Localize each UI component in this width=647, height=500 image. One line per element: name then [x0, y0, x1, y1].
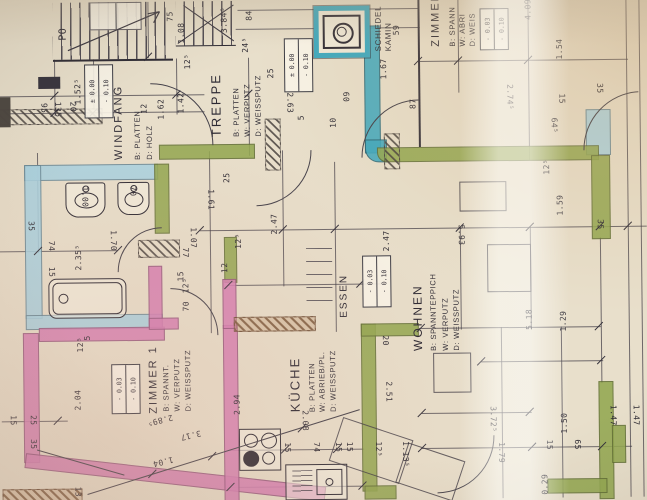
dim-label: 15: [47, 267, 56, 278]
level-table-windfang: ± 0.00 - 0.10: [84, 64, 114, 118]
finish-label: B: PLATTEN: [307, 363, 317, 412]
dim-label: 12⁵: [183, 54, 192, 70]
dim-label: 2.35⁵: [74, 244, 83, 270]
finish-label: B: SPANN: [447, 7, 456, 47]
finish-label: W: ABRI: [458, 13, 467, 46]
dim-label: 84: [244, 10, 253, 21]
dim-label: 135: [53, 102, 62, 118]
dim-label: 1.08: [177, 23, 186, 44]
level-value: - 0.03: [483, 17, 491, 41]
finish-label: D: WEIS: [468, 13, 477, 47]
level-value: - 0.10: [102, 79, 110, 103]
dim-label: 15: [176, 271, 185, 282]
room-label-essen: ESSEN: [338, 274, 349, 318]
dim-label: 2.51: [384, 381, 393, 402]
fixture-label: 70: [128, 186, 137, 197]
level-value: ± 0.00: [88, 80, 96, 104]
dim-label: 1.70: [109, 230, 118, 251]
dim-label: 2.08: [301, 410, 310, 431]
room-label-windfang: WINDFANG: [112, 85, 125, 160]
room-label-kamin: SCHIEDEL: [373, 6, 382, 52]
dim-label: 1.47: [632, 405, 641, 426]
dim-label: 5: [297, 115, 306, 120]
dim-label: 13: [73, 487, 82, 498]
level-table-treppe: ± 0.00 - 0.10: [284, 38, 314, 92]
level-value: ± 0.00: [287, 54, 295, 78]
dim-label: 65: [573, 439, 582, 450]
level-table-zimmer1: - 0.03 - 0.10: [111, 364, 141, 414]
dim-label: 1.54: [555, 39, 564, 60]
dim-label: 35: [596, 219, 605, 230]
dim-label: 20: [381, 335, 390, 346]
dim-label: 2.47: [382, 230, 391, 251]
finish-label: B: SPANNT.: [161, 364, 170, 411]
dim-label: 5: [83, 335, 92, 340]
dim-label: 1.13⁵: [401, 441, 410, 467]
dim-label: 35: [27, 221, 36, 232]
dim-label: 12: [220, 263, 229, 274]
dim-label: 3.84⁵: [219, 7, 228, 33]
room-label-treppe: TREPPE: [208, 73, 224, 137]
dim-label: 20: [68, 102, 77, 113]
dim-label: 1.67: [379, 58, 388, 79]
finish-label: B: SPANNTEPPICH: [428, 273, 438, 351]
finish-label: W: ABRIEB/PL.: [317, 351, 327, 412]
dim-label: 60: [341, 92, 350, 103]
finish-label: D: WEISSPUTZ: [328, 350, 338, 412]
door-arc: [256, 150, 312, 206]
dim-label: 12⁵: [542, 159, 551, 175]
room-label-podest: PO: [58, 28, 69, 41]
dim-label: 95: [39, 103, 48, 114]
dim-label: 74: [312, 442, 321, 453]
level-value: - 0.03: [115, 377, 123, 401]
level-table-zimmer2: - 0.03 - 0.10: [479, 8, 508, 50]
dim-label: 15: [545, 440, 554, 451]
door-arc: [437, 435, 495, 493]
dim-label: 2.04: [73, 390, 82, 411]
dim-label: 1.59: [555, 195, 564, 216]
dim-label: 77: [181, 247, 190, 258]
finish-label: W: VERPUTZ: [242, 84, 252, 137]
dim-label: 35: [29, 439, 38, 450]
dim-label: 1.29: [559, 311, 568, 332]
dim-label: 0.29: [540, 474, 549, 495]
dim-label: 2.94: [233, 394, 242, 415]
room-label-kueche: KÜCHE: [287, 357, 303, 413]
dim-label: 1.61: [206, 189, 215, 210]
dim-label: 15: [9, 415, 18, 426]
door-arc: [583, 92, 639, 151]
dim-label: 2.63: [285, 92, 294, 113]
dim-label: 74: [47, 241, 56, 252]
dim-label: 10: [329, 117, 338, 128]
level-value: - 0.10: [129, 377, 137, 401]
finish-label: D: WEISSPUTZ: [253, 75, 263, 137]
door-arc: [170, 288, 217, 335]
dim-label: 15: [283, 442, 292, 453]
floor-plan: PO WINDFANG B: PLATTEN D: HOLZ ± 0.00 - …: [0, 0, 647, 500]
finish-label: W: VERPUTZ: [172, 358, 182, 411]
dim-label: 5.93: [457, 225, 466, 246]
dim-label: 70: [182, 301, 191, 312]
dim-label: 3.72⁵: [489, 406, 498, 432]
finish-label: B: PLATTEN: [231, 87, 241, 136]
dim-label: 12⁵: [234, 233, 243, 249]
floor-plan-photo: PO WINDFANG B: PLATTEN D: HOLZ ± 0.00 - …: [0, 0, 647, 500]
dim-label: 1.79: [497, 442, 506, 463]
dim-label: 75: [165, 11, 174, 22]
dim-label: 15: [334, 442, 343, 453]
level-value: - 0.10: [301, 53, 309, 77]
dim-label: 87: [408, 99, 417, 110]
level-table-essen: - 0.03 - 0.10: [362, 255, 392, 307]
dim-label: 25: [29, 415, 38, 426]
dim-label: 15: [345, 442, 354, 453]
room-label-zimmer1: ZIMMER 1: [147, 345, 160, 414]
room-label-wohnen: WOHNEN: [410, 284, 425, 351]
stair-direction-arrow: [68, 12, 160, 51]
dim-label: 12: [139, 103, 148, 114]
dim-label: 4.09: [523, 0, 532, 20]
finish-label: D: WEISSPUTZ: [451, 289, 461, 351]
dim-label: 25: [266, 68, 275, 79]
dim-label: 1.42: [176, 93, 185, 114]
level-value: - 0.10: [497, 17, 505, 41]
dim-label: 15: [557, 93, 566, 104]
dim-label: 12⁵: [374, 441, 383, 457]
dim-label: 1.50: [560, 413, 569, 434]
level-value: - 0.10: [380, 270, 388, 294]
dim-label: 5.18: [525, 309, 534, 330]
finish-label: D: WEISSPUTZ: [183, 350, 193, 412]
level-value: - 0.03: [366, 270, 374, 294]
fixture-label: 1.00: [80, 186, 89, 207]
door-arc: [118, 228, 162, 272]
dim-label: 1.62: [156, 99, 165, 120]
finish-label: W: VERPUTZ: [441, 298, 451, 351]
finish-label: D: HOLZ: [145, 125, 154, 160]
dim-label: 2.74⁵: [505, 84, 514, 110]
dim-label: 2.47: [270, 214, 279, 235]
room-label-zimmer2: ZIMMER: [429, 0, 442, 47]
dim-label: 59: [392, 25, 401, 36]
finish-label: B: PLATTEN: [133, 111, 143, 160]
dim-label: 35: [595, 83, 604, 94]
dim-label: 24⁵: [241, 37, 250, 53]
dim-label: 64⁵: [550, 118, 559, 134]
dim-label: 1.07: [189, 227, 198, 248]
dim-label: 1.47: [609, 405, 618, 426]
dim-label: 25: [222, 173, 231, 184]
